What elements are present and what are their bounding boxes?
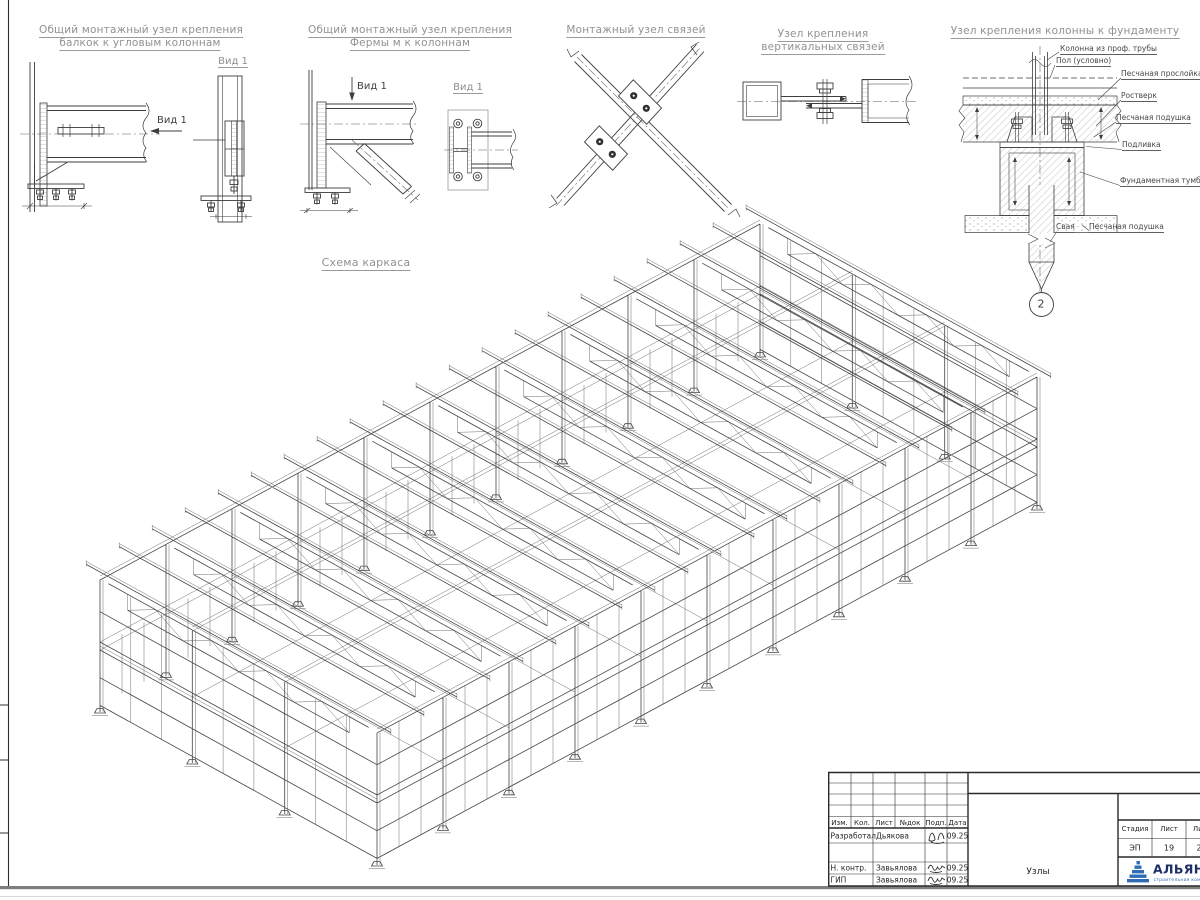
drawing-sheet: Общий монтажный узел крепления балкок к …: [0, 0, 1200, 900]
company-logo-icon: [1127, 861, 1149, 882]
detail-c-title: Монтажный узел связей: [566, 24, 705, 38]
label-sand-layer: Песчаная прослойка: [1121, 69, 1200, 80]
view1-arrow-label-detail-a: Вид 1: [157, 115, 187, 126]
label-sand-cushion: Песчаная подушка: [1116, 113, 1191, 124]
company-name: АЛЬЯНС: [1153, 862, 1200, 877]
titleblock-ncontr-name: Завьялова: [876, 864, 917, 873]
view1-arrow-label-detail-b: Вид 1: [357, 81, 387, 92]
beam-corner-column-detail-drawing: [20, 62, 252, 222]
titleblock-gip-date: 09.25: [947, 876, 968, 885]
titleblock-col-data: Дата: [948, 819, 966, 827]
x-brace-detail-drawing: [549, 42, 740, 217]
frame-scheme-title: Схема каркаса: [322, 256, 411, 271]
titleblock-ncontr-date: 09.25: [947, 864, 968, 873]
titleblock-developed-name: Дьякова: [876, 831, 909, 840]
truss-column-detail-drawing: [300, 70, 518, 213]
titleblock-gip-role: ГИП: [831, 876, 847, 885]
label-pile: Свая: [1056, 222, 1075, 233]
detail-a-title-line2: балкок к угловым колоннам: [59, 37, 220, 51]
titleblock-col-kol: Кол.: [854, 819, 870, 827]
titleblock-stage-label: Стадия: [1122, 825, 1149, 833]
frame-scheme-drawing: [86, 204, 1051, 868]
label-grout: Подливка: [1122, 140, 1161, 151]
titleblock-col-list: Лист: [875, 819, 893, 827]
titleblock-developed-role: Разработал: [831, 831, 876, 840]
signature: [928, 833, 945, 884]
titleblock-developed-date: 09.25: [947, 831, 968, 840]
titleblock-sheets-value: 2: [1196, 843, 1200, 852]
vertical-brace-detail-drawing: [737, 76, 918, 125]
titleblock-col-podp: Подп.: [925, 819, 946, 827]
label-pedestal: Фундаментная тумба: [1120, 176, 1200, 187]
detail-marker-2: 2: [1038, 298, 1045, 311]
company-subtitle: строительная компания: [1154, 878, 1200, 883]
label-column: Колонна из проф. трубы: [1060, 44, 1157, 55]
titleblock-sheets-label: Листов: [1193, 825, 1200, 833]
detail-e-title: Узел крепления колонны к фундаменту: [951, 25, 1180, 39]
sheet-linework: [0, 0, 1200, 900]
titleblock-doc-name: Узлы: [1026, 867, 1049, 877]
label-grillage: Ростверк: [1121, 91, 1157, 102]
detail-b-title-line2: Фермы м к колоннам: [350, 37, 470, 51]
label-floor: Пол (условно): [1056, 56, 1111, 67]
detail-b-title-line1: Общий монтажный узел крепления: [308, 24, 512, 38]
view1-title-detail-b: Вид 1: [453, 82, 483, 94]
titleblock-stage-value: ЭП: [1129, 843, 1141, 852]
view1-title-detail-a: Вид 1: [218, 56, 248, 68]
sheet-border: [0, 0, 9, 886]
foundation-detail-drawing: [959, 46, 1122, 317]
detail-a-title-line1: Общий монтажный узел крепления: [39, 24, 243, 38]
titleblock-sheet-value: 19: [1164, 843, 1174, 852]
titleblock-ncontr-role: Н. контр.: [831, 864, 867, 873]
titleblock-col-izm: Изм.: [831, 819, 847, 827]
titleblock-sheet-label: Лист: [1160, 825, 1178, 833]
detail-d-title-line2: вертикальных связей: [761, 41, 885, 55]
titleblock-gip-name: Завьялова: [876, 876, 917, 885]
titleblock-col-ndok: №док: [900, 819, 921, 827]
label-sand-cushion2: Песчаная подушка: [1089, 222, 1164, 233]
detail-d-title-line1: Узел крепления: [778, 28, 869, 42]
